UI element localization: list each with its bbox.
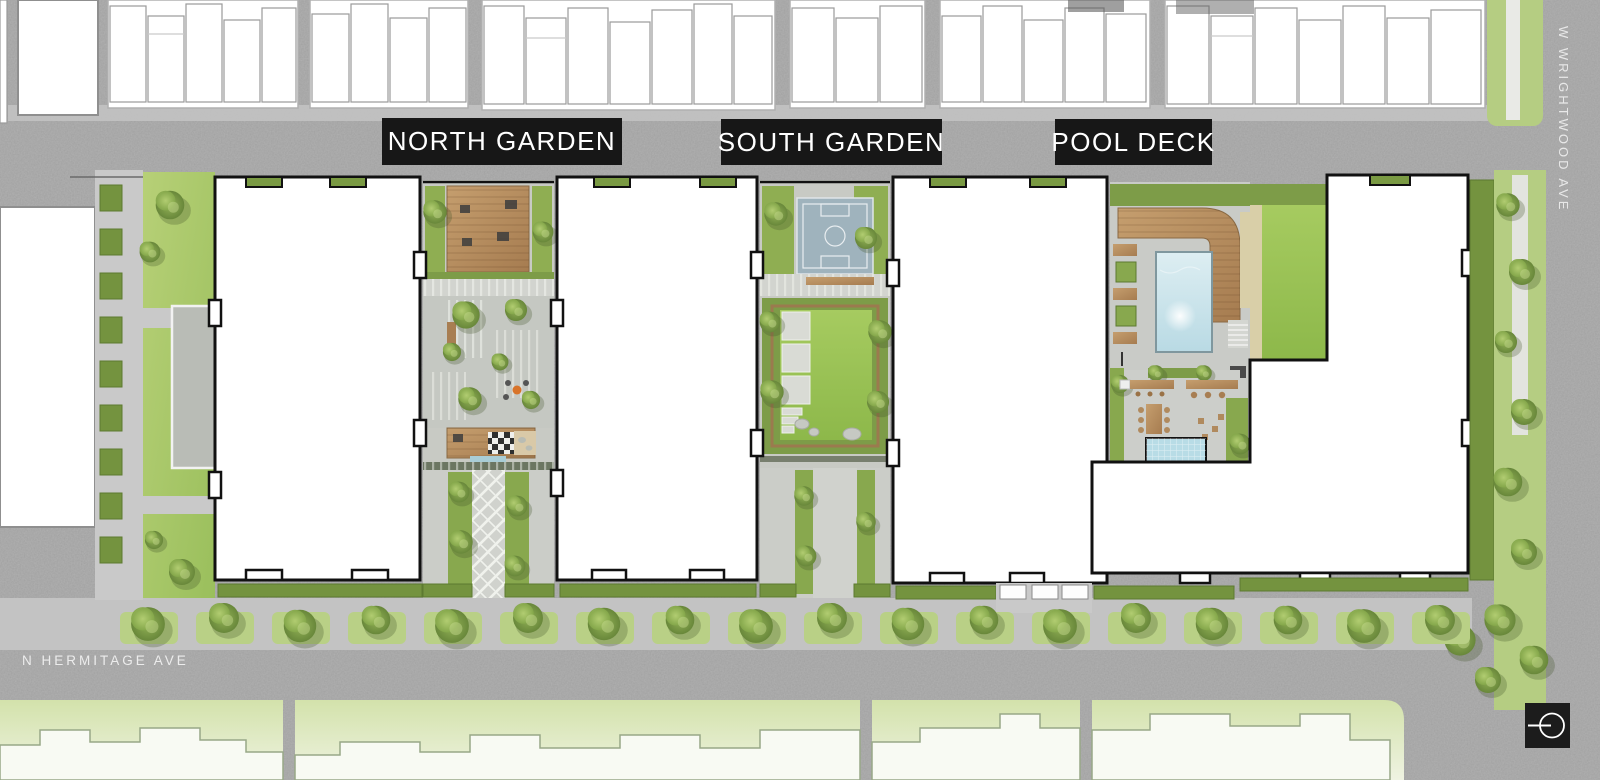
label-pool-deck: POOL DECK	[1055, 119, 1212, 165]
north-arrow-compass-icon	[1525, 703, 1570, 748]
building-middle	[551, 177, 763, 580]
site-plan: NORTH GARDEN SOUTH GARDEN POOL DECK N HE…	[0, 0, 1600, 780]
wrightwood-parkway	[1487, 0, 1543, 126]
site-plan-drawing	[0, 0, 1600, 780]
townhouse-rows	[0, 0, 1485, 123]
label-south-garden: SOUTH GARDEN	[721, 119, 942, 165]
pool-deck-courtyard	[1110, 182, 1255, 462]
east-lawn-terrace	[1240, 184, 1327, 360]
building-east-mid	[887, 177, 1107, 583]
south-blocks	[0, 700, 1404, 780]
building-west	[209, 177, 426, 580]
street-label-wrightwood: W WRIGHTWOOD AVE	[1556, 26, 1571, 212]
label-north-garden: NORTH GARDEN	[382, 118, 622, 165]
north-garden-courtyard	[423, 180, 558, 598]
street-label-hermitage: N HERMITAGE AVE	[22, 653, 189, 668]
compass-badge	[1525, 703, 1570, 748]
south-garden-courtyard	[760, 180, 898, 598]
